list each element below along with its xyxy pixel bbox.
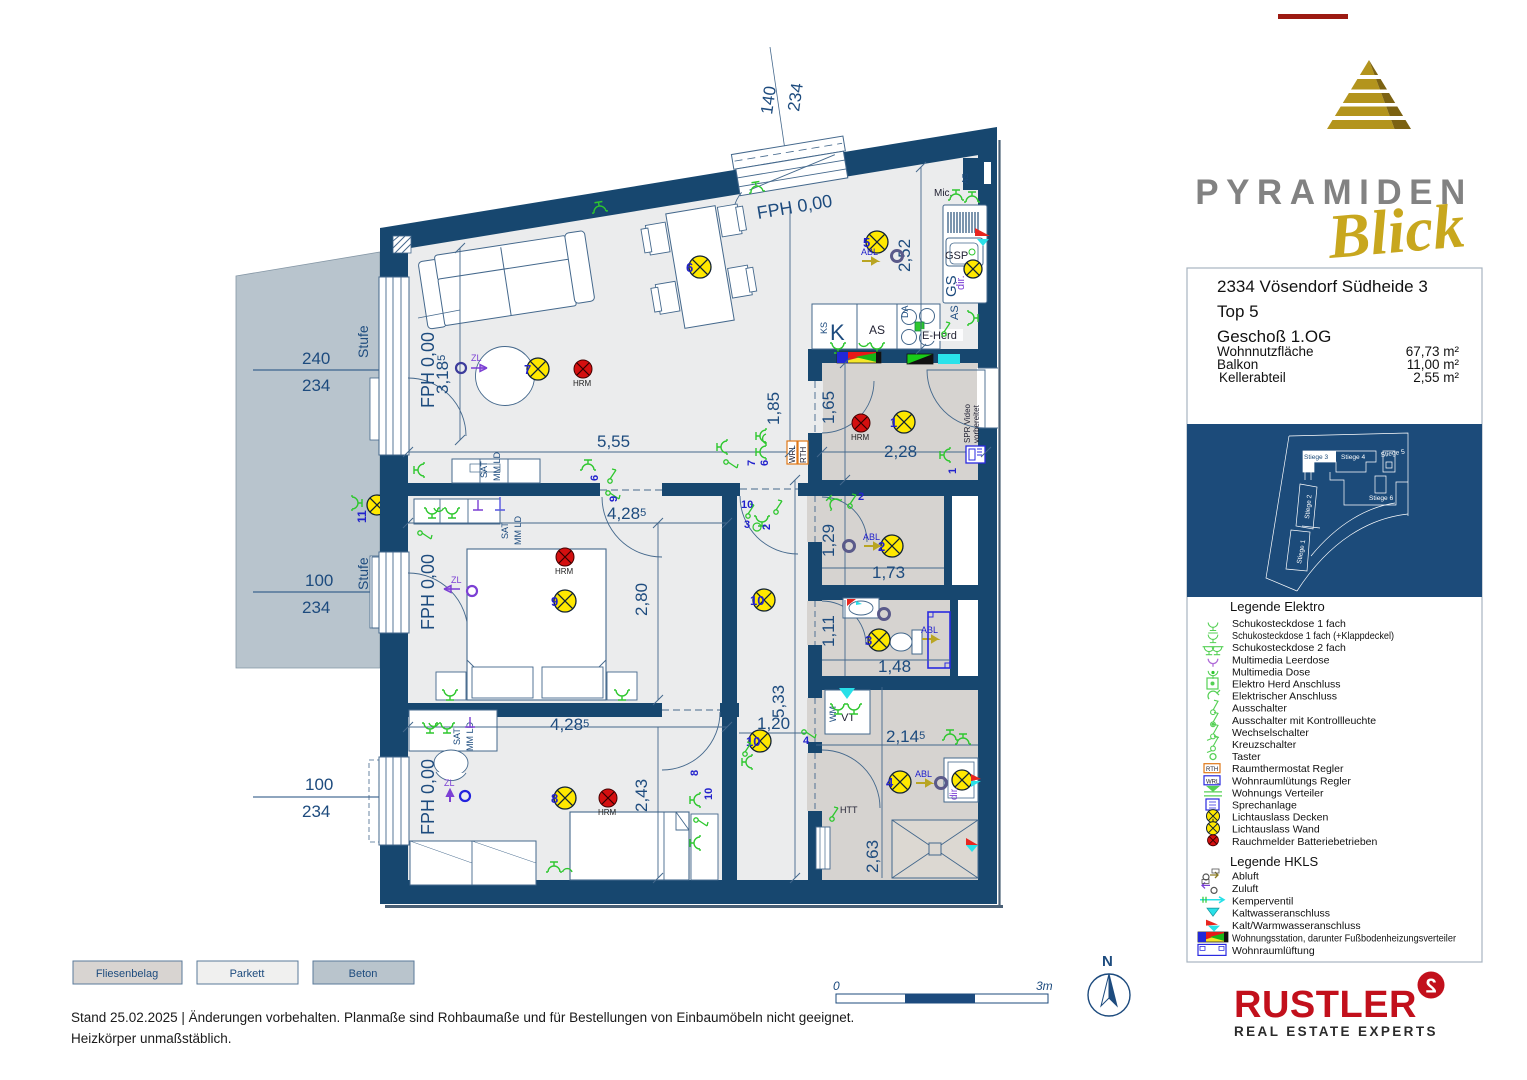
svg-text:Schukosteckdose 1 fach (+Klapp: Schukosteckdose 1 fach (+Klappdeckel) <box>1232 630 1394 642</box>
svg-text:K: K <box>830 320 845 345</box>
svg-text:100: 100 <box>305 775 333 794</box>
svg-text:6: 6 <box>759 460 771 466</box>
svg-text:Ausschalter mit Kontrollleucht: Ausschalter mit Kontrollleuchte <box>1232 715 1376 727</box>
svg-text:Wohnungsstation, darunter Fußb: Wohnungsstation, darunter Fußbodenheizun… <box>1232 933 1456 945</box>
svg-text:3m: 3m <box>1036 979 1053 993</box>
svg-text:Kaltwasseranschluss: Kaltwasseranschluss <box>1232 908 1330 920</box>
svg-text:9: 9 <box>608 496 620 502</box>
svg-text:ABL: ABL <box>863 532 880 542</box>
svg-text:234: 234 <box>302 598 330 617</box>
svg-text:4: 4 <box>803 735 810 747</box>
svg-text:Schukosteckdose 2 fach: Schukosteckdose 2 fach <box>1232 642 1346 654</box>
svg-text:Kalt/Warmwasseranschluss: Kalt/Warmwasseranschluss <box>1232 920 1361 932</box>
svg-text:ABL: ABL <box>921 625 938 635</box>
svg-text:GSP: GSP <box>945 250 968 262</box>
svg-text:FPH 0,00: FPH 0,00 <box>418 759 438 835</box>
svg-text:2: 2 <box>761 524 773 530</box>
svg-text:HRM: HRM <box>555 567 574 576</box>
svg-text:Wohnraumlütungs Regler: Wohnraumlütungs Regler <box>1232 775 1351 787</box>
svg-text:2,43: 2,43 <box>632 779 651 812</box>
svg-text:RUSTLER: RUSTLER <box>1234 984 1417 1026</box>
svg-text:240: 240 <box>302 349 330 368</box>
svg-text:N: N <box>1102 953 1113 970</box>
svg-text:Sprechanlage: Sprechanlage <box>1232 800 1297 812</box>
svg-text:0: 0 <box>833 979 840 993</box>
svg-text:SAT: SAT <box>452 728 462 745</box>
svg-text:Stufe: Stufe <box>355 325 371 358</box>
svg-text:Wohnungs Verteiler: Wohnungs Verteiler <box>1232 787 1324 799</box>
svg-text:Kellerabteil: Kellerabteil <box>1219 370 1286 385</box>
svg-text:1,73: 1,73 <box>872 563 905 582</box>
svg-text:7: 7 <box>524 362 531 377</box>
svg-text:RTH: RTH <box>1206 767 1218 773</box>
svg-text:5,55: 5,55 <box>597 432 630 451</box>
svg-text:REAL ESTATE EXPERTS: REAL ESTATE EXPERTS <box>1234 1024 1438 1039</box>
svg-text:234: 234 <box>302 802 330 821</box>
svg-text:Elektro Herd Anschluss: Elektro Herd Anschluss <box>1232 679 1341 691</box>
svg-text:MM LD: MM LD <box>492 452 502 482</box>
svg-text:8: 8 <box>689 770 701 776</box>
svg-text:SAT: SAT <box>479 461 489 478</box>
svg-text:AS: AS <box>949 305 961 320</box>
svg-text:10: 10 <box>741 499 753 511</box>
svg-text:1,65: 1,65 <box>819 391 838 424</box>
svg-text:234: 234 <box>302 376 330 395</box>
svg-text:ABL: ABL <box>861 247 878 257</box>
svg-text:1,29: 1,29 <box>819 524 838 557</box>
svg-text:ABL: ABL <box>915 769 932 779</box>
svg-text:ZL: ZL <box>444 778 455 788</box>
svg-text:6: 6 <box>589 475 601 481</box>
svg-text:ZL: ZL <box>471 353 482 363</box>
svg-text:Multimedia Dose: Multimedia Dose <box>1232 666 1310 678</box>
svg-text:10: 10 <box>703 788 715 800</box>
svg-text:WRL: WRL <box>788 445 797 463</box>
svg-text:Legende Elektro: Legende Elektro <box>1230 599 1325 614</box>
svg-text:Elektrischer Anschluss: Elektrischer Anschluss <box>1232 691 1337 703</box>
svg-text:Rauchmelder Batteriebetrieben: Rauchmelder Batteriebetrieben <box>1232 836 1377 848</box>
svg-text:2: 2 <box>1425 976 1436 998</box>
svg-text:1: 1 <box>890 415 897 430</box>
svg-text:Wohnraumlüftung: Wohnraumlüftung <box>1232 945 1315 957</box>
svg-text:4: 4 <box>886 775 894 790</box>
svg-text:Lichtauslass Wand: Lichtauslass Wand <box>1232 824 1320 836</box>
svg-text:9: 9 <box>551 594 558 609</box>
svg-text:Top 5: Top 5 <box>1217 302 1259 321</box>
svg-text:ZL: ZL <box>451 575 462 585</box>
svg-text:FPH 0,00: FPH 0,00 <box>418 554 438 630</box>
svg-text:10: 10 <box>750 593 764 608</box>
svg-text:dir.: dir. <box>949 787 960 800</box>
svg-text:Abluft: Abluft <box>1232 871 1259 883</box>
svg-text:100: 100 <box>305 571 333 590</box>
svg-text:8: 8 <box>551 791 558 806</box>
svg-text:Schukosteckdose 1 fach: Schukosteckdose 1 fach <box>1232 618 1346 630</box>
svg-text:Stiege 4: Stiege 4 <box>1341 454 1366 461</box>
svg-text:7: 7 <box>746 460 758 466</box>
svg-text:Zuluft: Zuluft <box>1232 883 1258 895</box>
svg-text:1,48: 1,48 <box>878 657 911 676</box>
svg-text:SPR Video: SPR Video <box>963 403 972 443</box>
svg-text:Mic.: Mic. <box>934 188 952 199</box>
svg-text:6: 6 <box>686 260 693 275</box>
svg-text:2334 Vösendorf Südheide 3: 2334 Vösendorf Südheide 3 <box>1217 277 1428 296</box>
svg-text:WRL: WRL <box>1206 779 1220 785</box>
svg-text:2,55 m²: 2,55 m² <box>1413 370 1459 385</box>
svg-text:Stand 25.02.2025 | Änderungen: Stand 25.02.2025 | Änderungen vorbehalte… <box>71 1010 854 1025</box>
svg-text:Ausschalter: Ausschalter <box>1232 703 1287 715</box>
svg-text:Kreuzschalter: Kreuzschalter <box>1232 739 1297 751</box>
svg-text:Blick: Blick <box>1324 190 1468 272</box>
svg-text:HRM: HRM <box>573 379 592 388</box>
svg-text:HRM: HRM <box>598 808 617 817</box>
svg-text:140: 140 <box>757 85 780 116</box>
svg-text:Raumthermostat Regler: Raumthermostat Regler <box>1232 763 1344 775</box>
svg-text:Stiege 3: Stiege 3 <box>1304 454 1329 461</box>
svg-text:2,52: 2,52 <box>895 239 914 272</box>
svg-text:3: 3 <box>865 633 872 648</box>
svg-text:234: 234 <box>784 82 807 113</box>
svg-text:Multimedia Leerdose: Multimedia Leerdose <box>1232 654 1330 666</box>
svg-text:Lichtauslass Decken: Lichtauslass Decken <box>1232 812 1328 824</box>
svg-text:SAT: SAT <box>500 522 510 539</box>
svg-text:Beton: Beton <box>349 968 378 980</box>
svg-text:AS: AS <box>961 173 970 184</box>
svg-text:HRM: HRM <box>851 433 870 442</box>
svg-text:2,28: 2,28 <box>884 442 917 461</box>
svg-text:AS: AS <box>869 323 885 337</box>
svg-text:KS: KS <box>819 322 829 334</box>
svg-text:RTH: RTH <box>799 446 808 463</box>
svg-text:E-Herd: E-Herd <box>922 330 957 342</box>
svg-text:11: 11 <box>355 510 369 523</box>
svg-text:Parkett: Parkett <box>230 968 265 980</box>
svg-text:Legende HKLS: Legende HKLS <box>1230 854 1319 869</box>
svg-text:HTT: HTT <box>840 805 858 815</box>
svg-text:3: 3 <box>744 519 750 531</box>
svg-text:Fliesenbelag: Fliesenbelag <box>96 968 158 980</box>
svg-text:1: 1 <box>947 468 959 474</box>
svg-text:vorbereitet: vorbereitet <box>972 404 981 443</box>
svg-text:Stiege 6: Stiege 6 <box>1369 495 1394 502</box>
svg-text:Kemperventil: Kemperventil <box>1232 895 1293 907</box>
svg-text:2,63: 2,63 <box>863 840 882 873</box>
svg-text:FPH 0,00: FPH 0,00 <box>418 332 438 408</box>
svg-text:1,85: 1,85 <box>764 392 783 425</box>
svg-text:GS: GS <box>943 275 960 297</box>
svg-text:Heizkörper unmaßstäblich.: Heizkörper unmaßstäblich. <box>71 1031 232 1046</box>
svg-text:1,11: 1,11 <box>819 615 838 647</box>
svg-text:Stufe: Stufe <box>355 557 371 590</box>
svg-text:DA: DA <box>900 305 910 318</box>
svg-text:Wechselschalter: Wechselschalter <box>1232 727 1309 739</box>
svg-text:2: 2 <box>858 491 864 503</box>
svg-text:MM LD: MM LD <box>513 516 523 546</box>
svg-text:Taster: Taster <box>1232 751 1261 763</box>
svg-text:2,80: 2,80 <box>632 583 651 616</box>
